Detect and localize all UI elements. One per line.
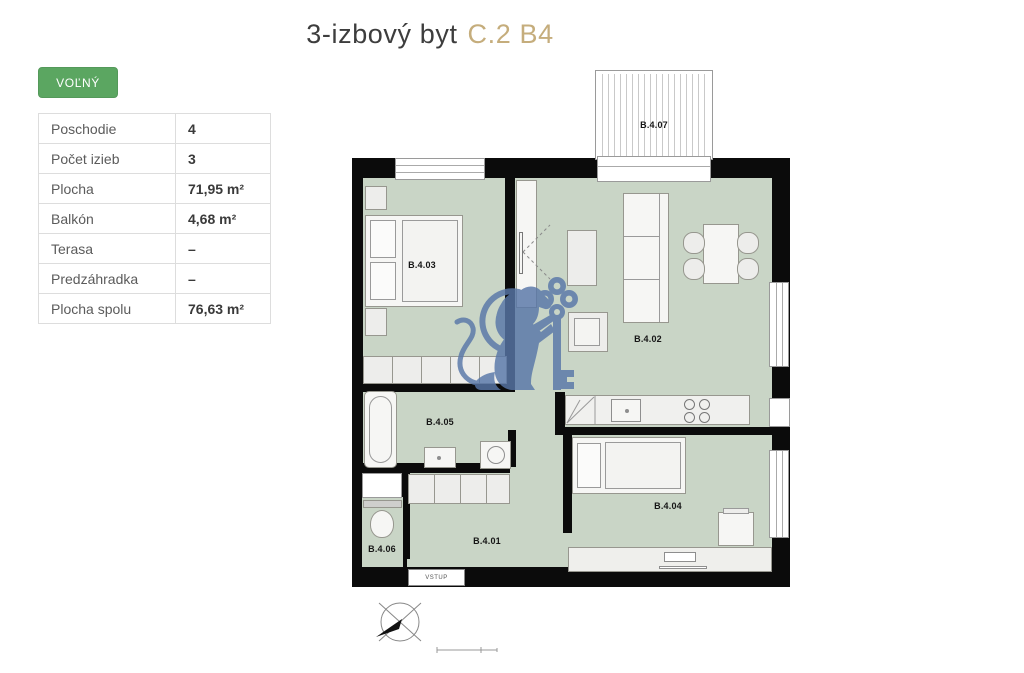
window-top — [395, 158, 485, 180]
row-label: Poschodie — [39, 114, 176, 143]
room-label-b405: B.4.05 — [426, 417, 454, 427]
row-label: Plocha — [39, 174, 176, 203]
details-table: Poschodie 4 Počet izieb 3 Plocha 71,95 m… — [38, 113, 271, 324]
room-label-b401: B.4.01 — [473, 536, 501, 546]
balcony-b407 — [595, 70, 713, 160]
row-value: 71,95 m² — [176, 174, 270, 203]
title-unit-code: C.2 B4 — [468, 19, 554, 49]
row-label: Plocha spolu — [39, 294, 176, 323]
sofa — [623, 193, 669, 323]
row-value: 76,63 m² — [176, 294, 270, 323]
entrance-label: VSTUP — [408, 569, 465, 586]
table-row: Poschodie 4 — [39, 114, 270, 144]
row-value: 4 — [176, 114, 270, 143]
table-row: Terasa – — [39, 234, 270, 264]
nightstand — [365, 308, 387, 336]
title-main: 3-izbový byt — [306, 19, 457, 49]
wall-niche — [769, 398, 790, 427]
bed-single — [572, 437, 686, 494]
wall — [565, 427, 772, 435]
nightstand — [365, 186, 387, 210]
room-label-b407: B.4.07 — [640, 120, 668, 130]
balcony-door-sill — [597, 156, 711, 182]
row-value: 3 — [176, 144, 270, 173]
wall — [563, 435, 572, 533]
room-label-b406: B.4.06 — [368, 544, 396, 554]
table-row: Počet izieb 3 — [39, 144, 270, 174]
chair — [683, 232, 705, 254]
row-label: Terasa — [39, 234, 176, 263]
chair — [737, 258, 759, 280]
floorplan: VSTUP — [350, 60, 792, 670]
kitchen-sink — [611, 399, 641, 422]
chair — [737, 232, 759, 254]
washing-machine — [480, 441, 511, 469]
page-title: 3-izbový bytC.2 B4 — [306, 19, 553, 50]
shaft-niche — [362, 473, 402, 498]
wash-basin — [424, 447, 456, 468]
row-label: Predzáhradka — [39, 264, 176, 293]
room-label-b402: B.4.02 — [634, 334, 662, 344]
table-row: Plocha 71,95 m² — [39, 174, 270, 204]
room-label-b404: B.4.04 — [654, 501, 682, 511]
row-value: – — [176, 264, 270, 293]
row-value: – — [176, 234, 270, 263]
lion-key-watermark — [435, 272, 595, 404]
desk-chair — [718, 512, 754, 546]
table-row: Plocha spolu 76,63 m² — [39, 294, 270, 324]
hall-wardrobe — [408, 474, 510, 504]
dining-table — [703, 224, 739, 284]
room-label-b403: B.4.03 — [408, 260, 436, 270]
row-label: Počet izieb — [39, 144, 176, 173]
scale-bar — [436, 646, 498, 654]
table-row: Predzáhradka – — [39, 264, 270, 294]
bathtub — [364, 391, 397, 468]
toilet — [370, 510, 394, 538]
row-label: Balkón — [39, 204, 176, 233]
window-right-lower — [769, 450, 789, 538]
window-right-upper — [769, 282, 789, 367]
cistern — [363, 500, 402, 508]
availability-badge[interactable]: VOĽNÝ — [38, 67, 118, 98]
dresser — [568, 547, 772, 572]
row-value: 4,68 m² — [176, 204, 270, 233]
compass-icon — [372, 594, 428, 652]
chair — [683, 258, 705, 280]
table-row: Balkón 4,68 m² — [39, 204, 270, 234]
